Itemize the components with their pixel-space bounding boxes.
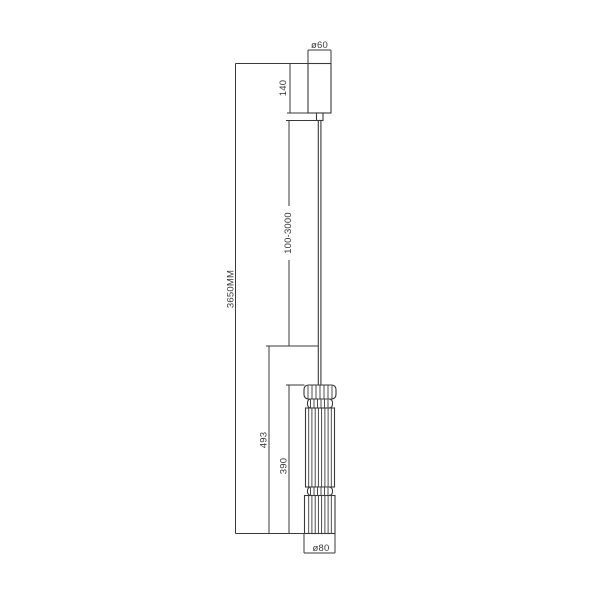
canopy-diameter-label: ø60 (311, 40, 328, 51)
suspension-cable (318, 121, 321, 386)
shade-main-body (306, 408, 335, 487)
shade-upper-ring (308, 399, 333, 408)
shade-waist-ring (308, 487, 333, 496)
canopy-height-label: 140 (278, 80, 289, 96)
cable-length-label: 100-3000 (283, 212, 294, 254)
pendant-lamp-dimension-drawing: ø60 140 100-3000 3650MM 493 390 ø80 (0, 0, 600, 600)
canopy-body (308, 64, 331, 114)
technical-drawing-page: ø60 140 100-3000 3650MM 493 390 ø80 (0, 0, 600, 600)
overall-height-label: 3650MM (226, 270, 237, 308)
shade-diameter-label: ø80 (313, 543, 330, 554)
shade-body-height-label: 390 (279, 458, 290, 474)
shade-overall-height-label: 493 (259, 432, 270, 448)
cord-connector (317, 113, 324, 121)
